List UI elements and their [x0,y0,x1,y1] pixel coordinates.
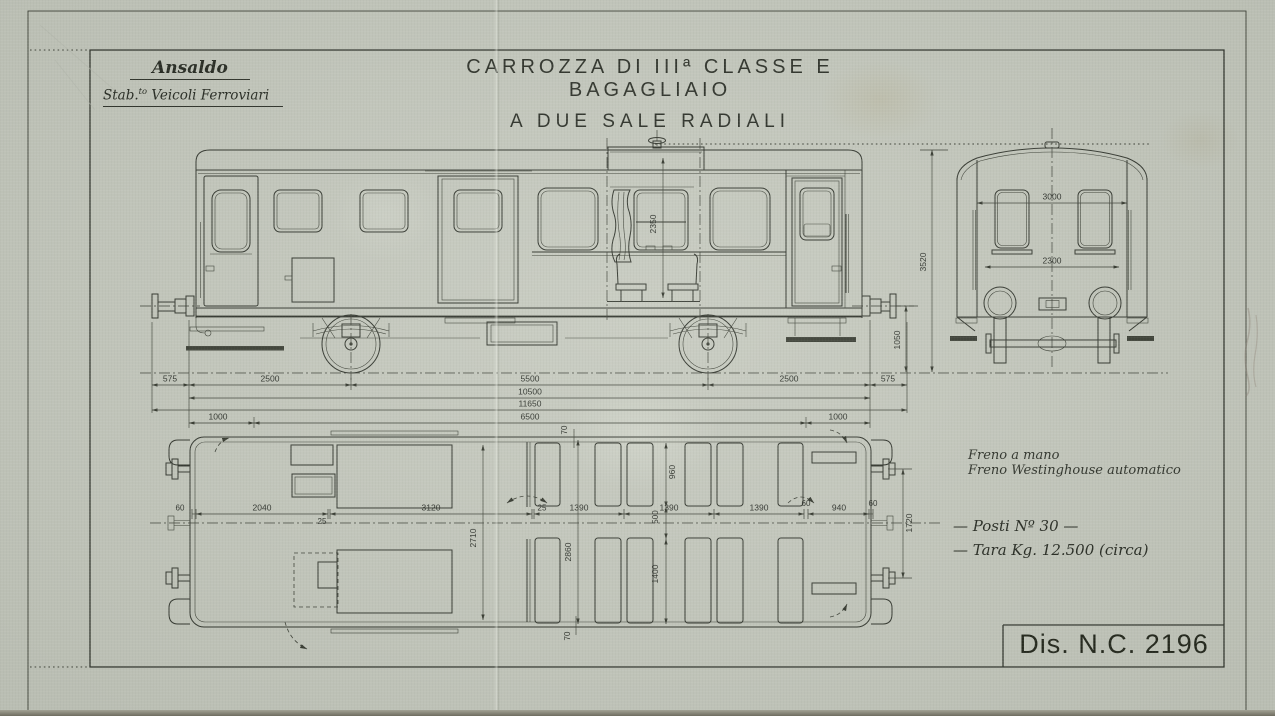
wheel-right [670,314,746,380]
plan-sliding-door [337,550,452,613]
plan-sliding-door [337,445,452,508]
seats-note: — Posti Nº 30 — [953,517,1078,535]
dim-label: 2500 [780,374,799,384]
underframe-box [487,322,557,345]
end-window [992,190,1032,254]
passenger-window [710,188,770,250]
dim-label: 70 [560,425,569,434]
end-view-drawing: 3000 2300 [950,128,1154,368]
dim-label: 2710 [468,528,478,547]
dim-label: 500 [651,510,660,524]
perforated-vent-plate [285,258,334,302]
sliding-door [425,171,532,323]
blueprint-sheet: { "header": { "company": { "name": "Ansa… [0,0,1275,716]
title-line-1: CARROZZA DI IIIª CLASSE E BAGAGLIAIO [390,56,910,102]
side-elevation-drawing: 2350 [140,130,1168,380]
dim-label: 1390 [660,503,679,513]
dim-label: 1000 [209,412,228,422]
dim-label: 60 [176,504,185,513]
margin-pencil-note [1245,308,1257,396]
end-window [1075,190,1115,254]
wheel-left [313,314,389,380]
step-board [190,327,264,331]
dim-label: 25 [318,517,327,526]
company-name: Ansaldo [130,58,250,80]
interior-seat [668,254,698,301]
dim-label: 1400 [650,564,660,583]
brake-note-line2: Freno Westinghouse automatico [968,463,1181,478]
interior-cut-section: 2350 [607,130,704,320]
drawing-number: Dis. N.C. 2196 [1008,629,1220,660]
dim-label: 60 [802,499,811,508]
dim-label: 940 [832,503,846,513]
dim-label: 2860 [563,542,573,561]
buffer-left [140,294,211,336]
plan-benches-bottom [535,538,803,623]
dim-label: 575 [881,374,895,384]
end-step [871,599,892,624]
dim-label: 1390 [570,503,589,513]
baggage-window [360,190,408,232]
company-dept: Stab.to Veicoli Ferroviari [103,86,283,107]
dim-label: 960 [667,465,677,479]
dim-label: 575 [163,374,177,384]
brake-notes: Freno a mano Freno Westinghouse automati… [968,448,1181,478]
baggage-bench [291,445,333,465]
tara-note: — Tara Kg. 12.500 (circa) [953,541,1148,559]
end-buffer [984,287,1121,319]
title-line-2: A DUE SALE RADIALI [390,111,910,133]
end-coupling [1039,298,1066,310]
platform-bench [812,583,856,594]
interior-window [634,190,688,250]
company-dept-rest: Veicoli Ferroviari [147,88,269,104]
door-swing-arc [285,622,307,649]
dim-label-buffer-height: 1050 [892,330,902,349]
door-swing-arc [215,438,229,452]
brake-note-line1: Freno a mano [968,448,1181,463]
dim-label: 11650 [518,399,541,409]
dim-label: 10500 [518,387,542,397]
dim-label: 25 [538,504,547,513]
platform-bench [812,452,856,463]
side-view-dimensions: 575 2500 5500 2500 575 10500 11650 1000 … [152,144,1150,428]
dim-label: 2500 [261,374,280,384]
dim-label: 2040 [253,503,272,513]
baggage-dashed-area [294,553,338,607]
company-dept-prefix: Stab. [103,88,139,104]
drawing-title: CARROZZA DI IIIª CLASSE E BAGAGLIAIO A D… [390,56,910,133]
dim-label: 1000 [829,412,848,422]
dim-label: 1720 [904,513,914,532]
passenger-window [538,188,598,250]
plan-view-drawing [150,430,940,649]
paper-bottom-edge [0,710,1275,716]
dim-label-end-upper: 3000 [1043,192,1062,202]
coupling-bar [990,340,1116,347]
baggage-window [274,190,322,232]
dim-label: 1390 [750,503,769,513]
baggage-end-door [201,176,259,306]
step-board [186,346,284,351]
dim-label: 6500 [521,412,540,422]
end-step [169,599,190,624]
dim-label-end-lower: 2300 [1043,256,1062,266]
dim-label: 3120 [422,503,441,513]
dim-label-section-height: 2350 [648,214,658,233]
dim-label: 5500 [521,374,540,384]
curtain [612,190,631,262]
door-swing-arc [830,604,847,617]
plan-buffer [166,459,895,588]
dim-label: 70 [563,631,572,640]
dim-label-total-height: 3520 [918,252,928,271]
company-dept-sup: to [139,86,147,96]
baggage-bench [292,474,335,497]
dim-label: 60 [869,499,878,508]
